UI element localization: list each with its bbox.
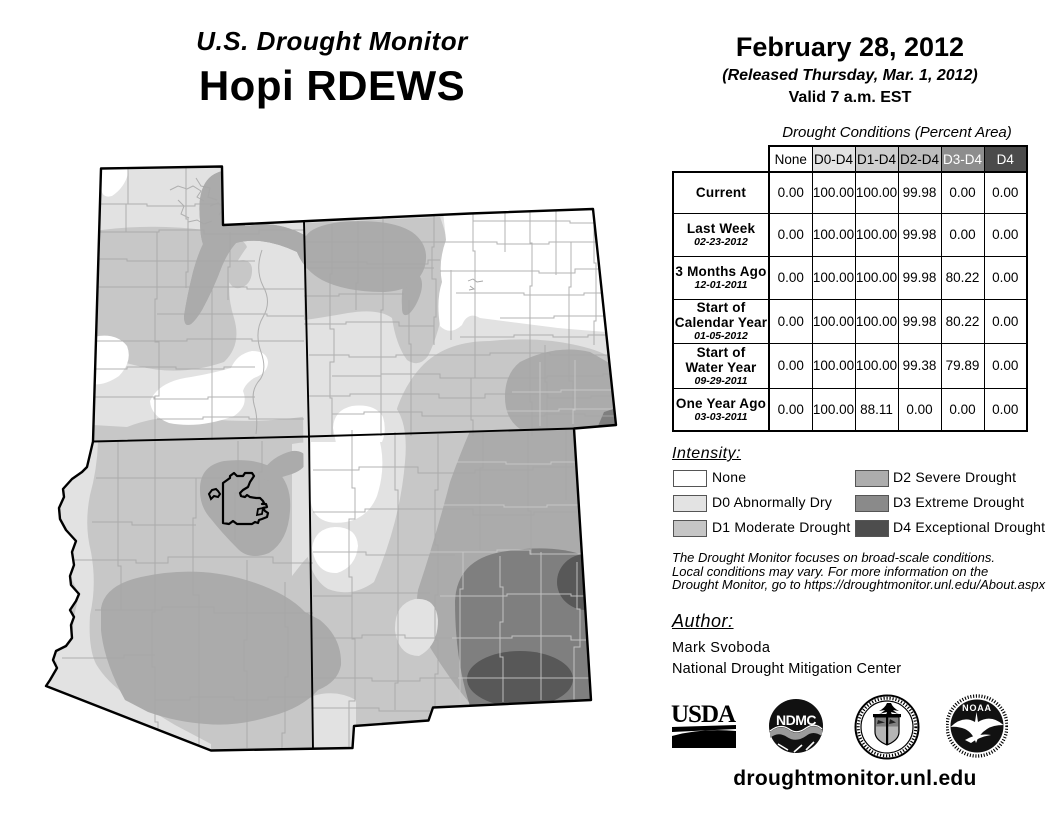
svg-text:NOAA: NOAA bbox=[962, 703, 992, 713]
svg-text:USDA: USDA bbox=[671, 703, 736, 728]
